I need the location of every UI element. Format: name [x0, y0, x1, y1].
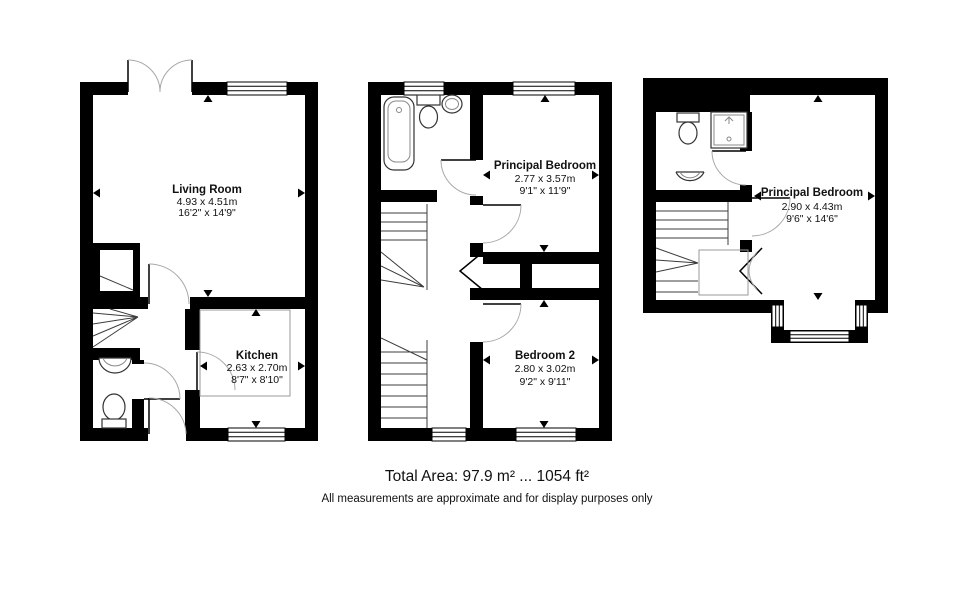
wall-arrow: [540, 421, 549, 428]
wall-arrow: [252, 421, 261, 428]
shower-icon: [711, 112, 747, 148]
cupboard-bifold-door: [740, 248, 762, 294]
wall-arrow: [814, 95, 823, 102]
toilet-icon: [102, 394, 126, 428]
wall-arrow: [814, 293, 823, 300]
wall-arrow: [298, 362, 305, 371]
room-name: Principal Bedroom: [761, 187, 863, 199]
stairs: [656, 202, 748, 295]
sink-icon: [442, 95, 462, 113]
door-arc: [483, 304, 521, 342]
toilet-icon: [677, 113, 699, 144]
room-dim-metric: 2.80 x 3.02m: [515, 363, 576, 375]
room-name: Bedroom 2: [515, 350, 575, 362]
room-label-principal-bedroom: Principal Bedroom 2.90 x 4.43m 9'6" x 14…: [761, 187, 863, 225]
walls: [80, 82, 318, 441]
sink-icon: [676, 172, 704, 181]
door-arc: [441, 160, 476, 195]
window: [404, 82, 444, 95]
room-name: Living Room: [172, 184, 242, 196]
room-dim-imperial: 16'2" x 14'9": [178, 207, 236, 219]
room-dim-imperial: 8'7" x 8'10": [231, 374, 283, 386]
room-dim-metric: 2.77 x 3.57m: [515, 173, 576, 185]
window: [513, 82, 575, 95]
wall-arrow: [93, 189, 100, 198]
first-floor-plan: Principal Bedroom 2.77 x 3.57m 9'1" x 11…: [368, 82, 612, 441]
door-arc: [144, 363, 180, 399]
wall-arrow: [483, 171, 490, 180]
window: [227, 82, 287, 95]
toilet-icon: [417, 95, 440, 128]
window: [772, 305, 783, 327]
wall-arrow: [204, 290, 213, 297]
total-area-text: Total Area: 97.9 m² ... 1054 ft²: [385, 468, 589, 485]
cupboard-door: [460, 252, 483, 290]
wall-arrow: [298, 189, 305, 198]
room-label-principal-bedroom: Principal Bedroom 2.77 x 3.57m 9'1" x 11…: [494, 160, 596, 197]
second-floor-plan: Principal Bedroom 2.90 x 4.43m 9'6" x 14…: [643, 78, 888, 343]
window: [516, 428, 576, 441]
wall-arrow: [540, 245, 549, 252]
bathtub-icon: [384, 97, 414, 170]
room-dim-imperial: 9'6" x 14'6": [786, 213, 838, 225]
door-arc: [149, 264, 189, 304]
floorplan-page: Living Room 4.93 x 4.51m 16'2" x 14'9" K…: [0, 0, 980, 593]
sink-icon: [99, 358, 131, 373]
window: [790, 331, 849, 342]
room-label-bedroom-2: Bedroom 2 2.80 x 3.02m 9'2" x 9'11": [515, 350, 576, 388]
wall-arrow: [204, 95, 213, 102]
room-label-living-room: Living Room 4.93 x 4.51m 16'2" x 14'9": [172, 184, 242, 219]
room-dim-metric: 2.90 x 4.43m: [782, 201, 843, 213]
footer: Total Area: 97.9 m² ... 1054 ft² All mea…: [321, 468, 652, 505]
wall-arrow: [483, 356, 490, 365]
door-arc: [712, 151, 746, 185]
disclaimer-text: All measurements are approximate and for…: [321, 493, 652, 505]
floorplan-drawing: Living Room 4.93 x 4.51m 16'2" x 14'9" K…: [0, 0, 980, 593]
window: [856, 305, 867, 327]
room-label-kitchen: Kitchen 2.63 x 2.70m 8'7" x 8'10": [227, 350, 288, 386]
wall-arrow: [540, 300, 549, 307]
wall-arrow: [868, 192, 875, 201]
room-dim-imperial: 9'1" x 11'9": [520, 185, 571, 197]
room-dim-imperial: 9'2" x 9'11": [520, 376, 571, 388]
wall-arrow: [200, 362, 207, 371]
room-name: Principal Bedroom: [494, 160, 596, 172]
wall-arrow: [592, 356, 599, 365]
door-arc: [483, 205, 521, 243]
wall-arrow: [541, 95, 550, 102]
room-dim-metric: 2.63 x 2.70m: [227, 362, 288, 374]
window: [432, 428, 466, 441]
room-name: Kitchen: [236, 350, 278, 362]
window: [228, 428, 285, 441]
stairs: [381, 204, 427, 428]
ground-floor-plan: Living Room 4.93 x 4.51m 16'2" x 14'9" K…: [80, 60, 318, 441]
